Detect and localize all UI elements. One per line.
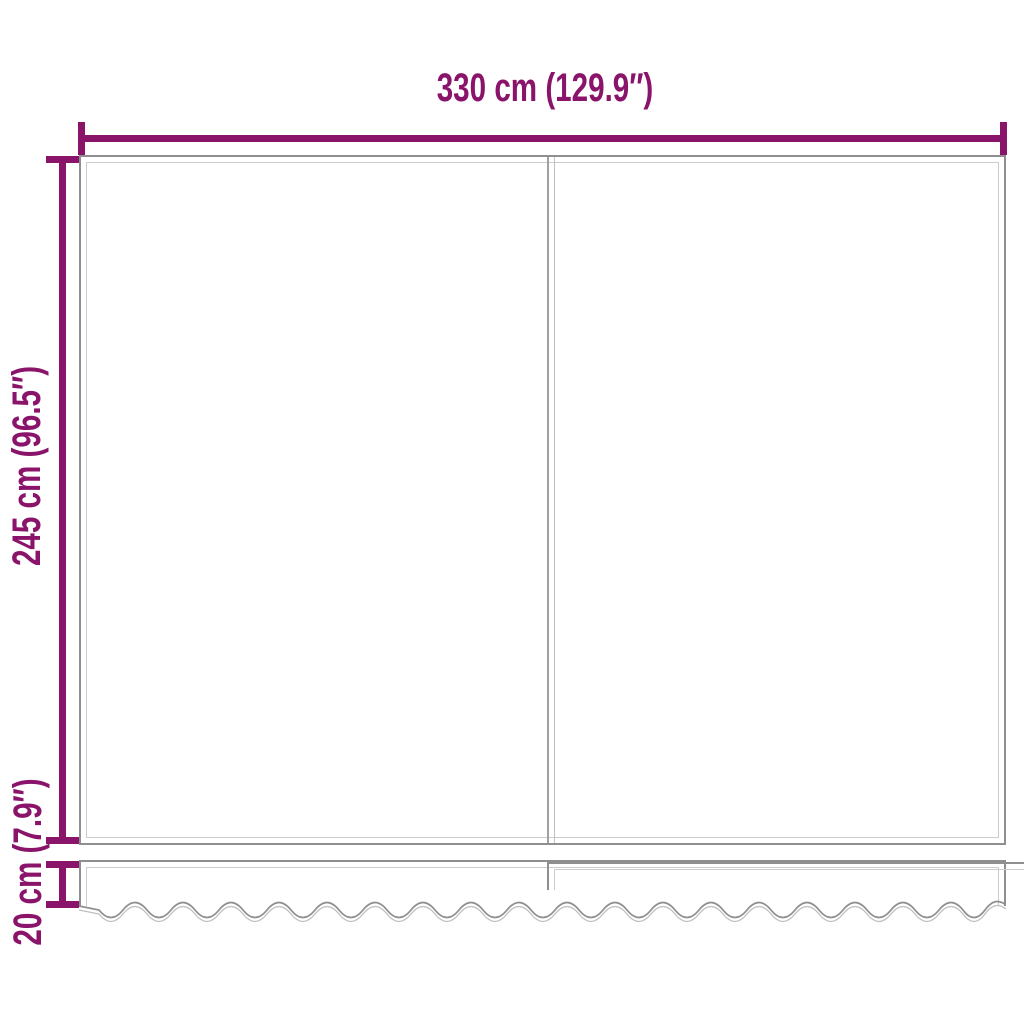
fabric-panel-outline [79, 155, 1006, 845]
height-dimension-tick-top [46, 156, 79, 163]
height-dimension-label: 245 cm (96.5″) [7, 366, 47, 566]
valance-wavy-edge [79, 894, 1006, 928]
width-dimension-tick-left [78, 122, 85, 155]
width-dimension-line [81, 135, 1003, 142]
height-dimension-tick-bottom [46, 837, 79, 844]
height-dimension-line [59, 157, 66, 844]
valance-dimension-line [59, 865, 66, 904]
valance-dimension-tick-top [46, 861, 79, 868]
valance-dimension-label: 20 cm (7.9″) [8, 778, 48, 945]
width-dimension-tick-right [1000, 122, 1007, 155]
fabric-center-seam [547, 157, 555, 843]
valance-center-seam [547, 862, 1024, 890]
valance-dimension-tick-bottom [46, 901, 79, 908]
dimension-diagram: 330 cm (129.9″) 245 cm (96.5″) 20 cm (7.… [0, 0, 1024, 1024]
width-dimension-label: 330 cm (129.9″) [437, 68, 654, 108]
valance-wave-inner-line [79, 905, 1006, 921]
